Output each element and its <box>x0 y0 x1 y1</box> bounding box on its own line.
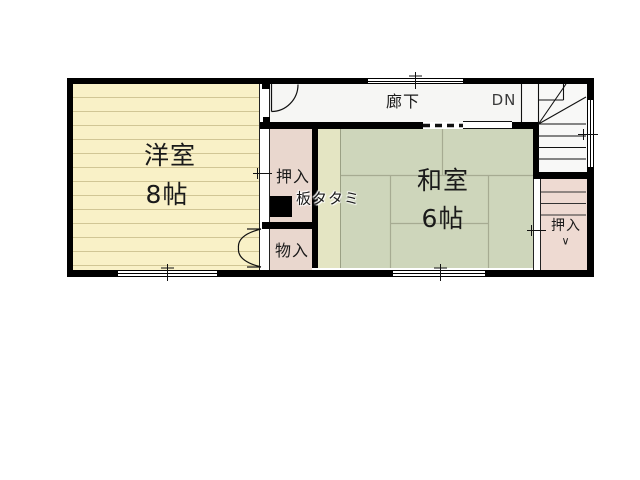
closet-under-stairs-label: 押入 <box>551 215 581 235</box>
stairs-lines <box>522 84 587 159</box>
storage-label: 物入 <box>275 237 309 261</box>
stairs-dn-label: DN <box>492 91 517 109</box>
closet-upper-label: 押入 <box>276 163 310 187</box>
board-tatami-label: 板タタミ <box>296 188 360 209</box>
opening-center-ticks <box>161 72 598 281</box>
storage-double-door-swing <box>238 229 261 267</box>
japanese-room-size: 6帖 <box>422 199 465 235</box>
floorplan-canvas: 洋室 8帖 和室 6帖 廊下 DN 押入 板タタミ 物入 押入 ∨ <box>0 0 640 480</box>
western-room-size: 8帖 <box>146 175 189 211</box>
corridor-label: 廊下 <box>386 88 420 112</box>
western-room-label: 洋室 <box>144 136 196 172</box>
corridor-door-swing <box>272 84 299 112</box>
under-stair-shelf-lines <box>541 192 586 215</box>
closet-under-stairs-arrow: ∨ <box>561 235 570 248</box>
japanese-room-label: 和室 <box>417 161 469 197</box>
linework-overlay <box>0 0 640 480</box>
